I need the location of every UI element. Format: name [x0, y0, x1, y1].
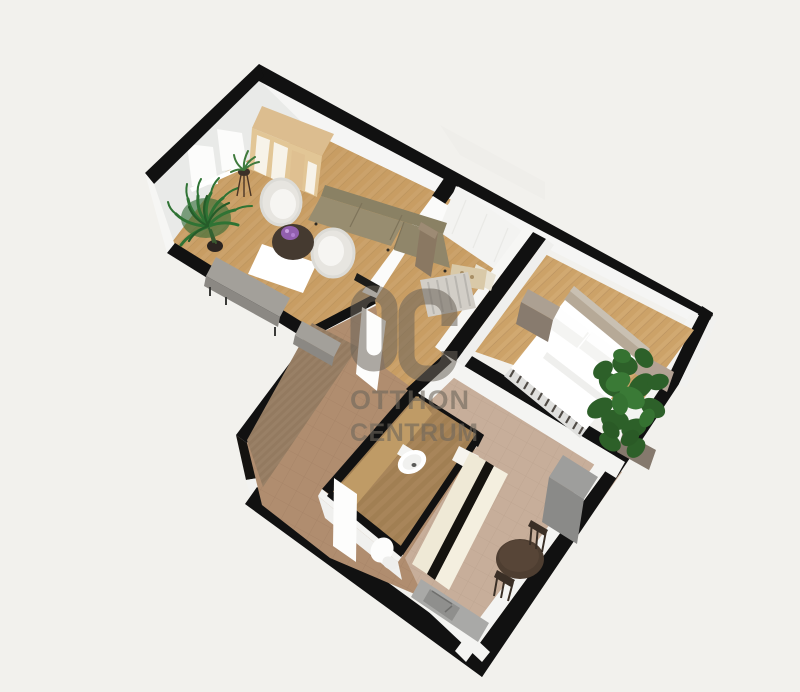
svg-text:CENTRUM: CENTRUM: [350, 419, 479, 447]
svg-text:OTTHON: OTTHON: [350, 385, 470, 415]
